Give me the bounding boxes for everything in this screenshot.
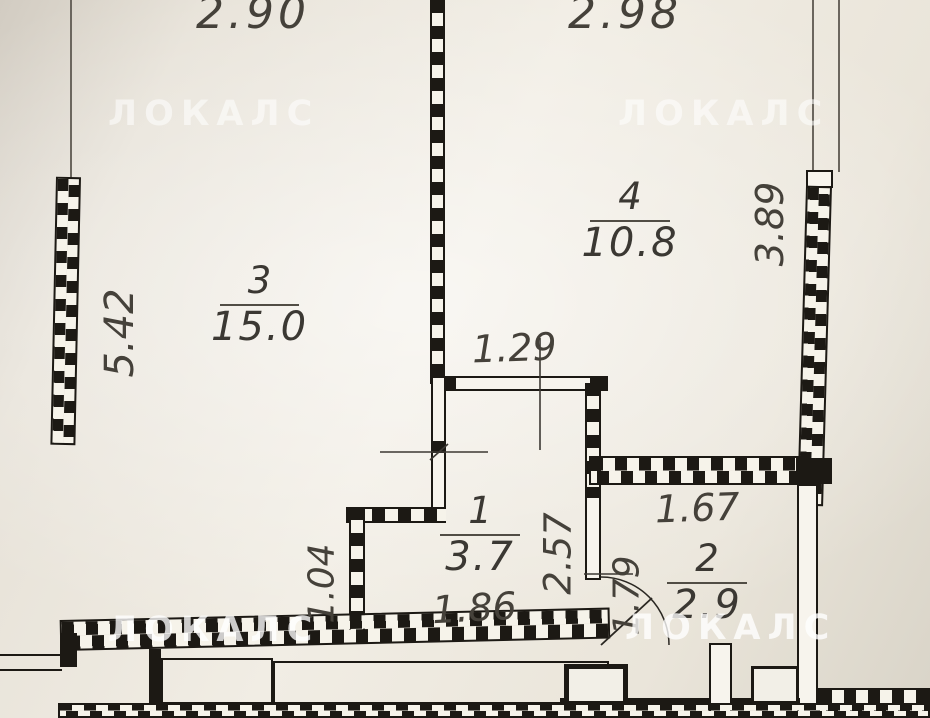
dim-top-right: 2.98 <box>568 0 682 39</box>
watermark-top-right: ЛОКАЛС <box>618 94 829 134</box>
room-1-label: 1 3.7 <box>430 492 530 578</box>
watermark-top-left: ЛОКАЛС <box>108 94 319 134</box>
dim-hall-top-width: 1.29 <box>471 325 557 372</box>
dim-right-wall: 3.89 <box>748 159 792 289</box>
dim-hall-width: 1.86 <box>431 584 518 632</box>
dim-left-wall: 5.42 <box>97 268 143 398</box>
watermark-bottom-left: ЛОКАЛС <box>108 610 319 650</box>
room-2-number: 2 <box>667 540 747 584</box>
room-4-number: 4 <box>590 178 670 222</box>
room-3-label: 3 15.0 <box>192 262 327 348</box>
dim-top-left: 2.90 <box>196 0 310 39</box>
floor-plan-scan: 3 15.0 4 10.8 1 3.7 2 2.9 2.90 2.98 5.42… <box>0 0 930 718</box>
room-1-area: 3.7 <box>445 534 515 580</box>
dim-room2-width: 1.67 <box>654 485 740 532</box>
room-1-number: 1 <box>440 492 520 536</box>
room-4-label: 4 10.8 <box>575 178 685 264</box>
room-3-area: 15.0 <box>211 304 308 350</box>
room-4-area: 10.8 <box>581 220 678 266</box>
dim-hall-depth: 2.57 <box>537 494 580 614</box>
watermark-bottom-right: ЛОКАЛС <box>625 608 836 648</box>
room-3-number: 3 <box>220 262 300 306</box>
